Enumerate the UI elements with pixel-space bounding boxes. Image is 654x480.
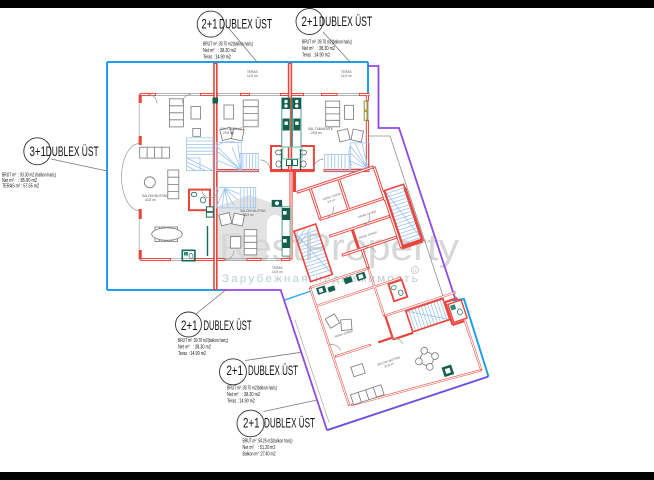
svg-text:DUBLEX ÜST: DUBLEX ÜST xyxy=(248,363,298,378)
svg-text:42,8 m²: 42,8 m² xyxy=(145,198,156,202)
svg-text:BRUT m² :39.70 m2(balkon hariç: BRUT m² :39.70 m2(balkon hariç) xyxy=(227,386,277,392)
svg-text:14,9 m²: 14,9 m² xyxy=(272,270,283,274)
svg-text:BRUT m² :39.70 m2(balkon hariç: BRUT m² :39.70 m2(balkon hariç) xyxy=(203,42,253,48)
svg-text:Net m² : 38.30 m2: Net m² : 38.30 m2 xyxy=(227,392,260,398)
svg-text:3+1: 3+1 xyxy=(30,144,47,159)
svg-text:Teras :14.90 m2: Teras :14.90 m2 xyxy=(302,53,330,59)
svg-text:DUBLEX ÜST: DUBLEX ÜST xyxy=(264,416,315,431)
svg-text:TERAS m² : 57.55 m2: TERAS m² : 57.55 m2 xyxy=(2,184,39,190)
svg-text:2+1: 2+1 xyxy=(181,318,198,333)
svg-text:DUBLEX ÜST: DUBLEX ÜST xyxy=(319,14,372,29)
svg-text:2+1: 2+1 xyxy=(302,14,319,29)
svg-text:Balkon m² :27.40 m2: Balkon m² :27.40 m2 xyxy=(243,452,276,458)
svg-text:Teras :14.90 m2: Teras :14.90 m2 xyxy=(203,55,231,61)
svg-text:2+1: 2+1 xyxy=(227,363,244,378)
svg-text:Net m² : 38.30 m2: Net m² : 38.30 m2 xyxy=(203,48,236,54)
svg-text:35,9 m²: 35,9 m² xyxy=(243,213,254,217)
svg-text:DUBLEX ÜST: DUBLEX ÜST xyxy=(219,16,272,31)
svg-text:14,9 m²: 14,9 m² xyxy=(247,74,258,78)
svg-text:BRUT m² :54.25 m2(balkon hariç: BRUT m² :54.25 m2(balkon hariç) xyxy=(243,439,293,445)
svg-text:BRUT m² :39.70 m2(balkon hariç: BRUT m² :39.70 m2(balkon hariç) xyxy=(302,40,352,46)
svg-text:29,8 m²: 29,8 m² xyxy=(311,131,322,135)
svg-text:DUBLEX ÜST: DUBLEX ÜST xyxy=(46,144,99,159)
svg-text:2+1: 2+1 xyxy=(202,16,218,31)
svg-text:Net m² : 51.20 m2: Net m² : 51.20 m2 xyxy=(243,445,276,451)
svg-text:Teras :14.90 m2: Teras :14.90 m2 xyxy=(178,351,206,357)
svg-text:Net m² : 38.30 m2: Net m² : 38.30 m2 xyxy=(178,344,211,350)
svg-text:14,9 m²: 14,9 m² xyxy=(341,74,352,78)
svg-text:2+1: 2+1 xyxy=(243,416,260,431)
svg-text:Teras :14.90 m2: Teras :14.90 m2 xyxy=(227,399,255,405)
svg-text:Net m² : 38.30 m2: Net m² : 38.30 m2 xyxy=(302,46,335,52)
svg-text:29,8 m²: 29,8 m² xyxy=(223,131,234,135)
svg-text:DUBLEX ÜST: DUBLEX ÜST xyxy=(204,318,252,333)
svg-text:BRUT m² :39.70 m2(balkon hariç: BRUT m² :39.70 m2(balkon hariç) xyxy=(178,338,228,344)
